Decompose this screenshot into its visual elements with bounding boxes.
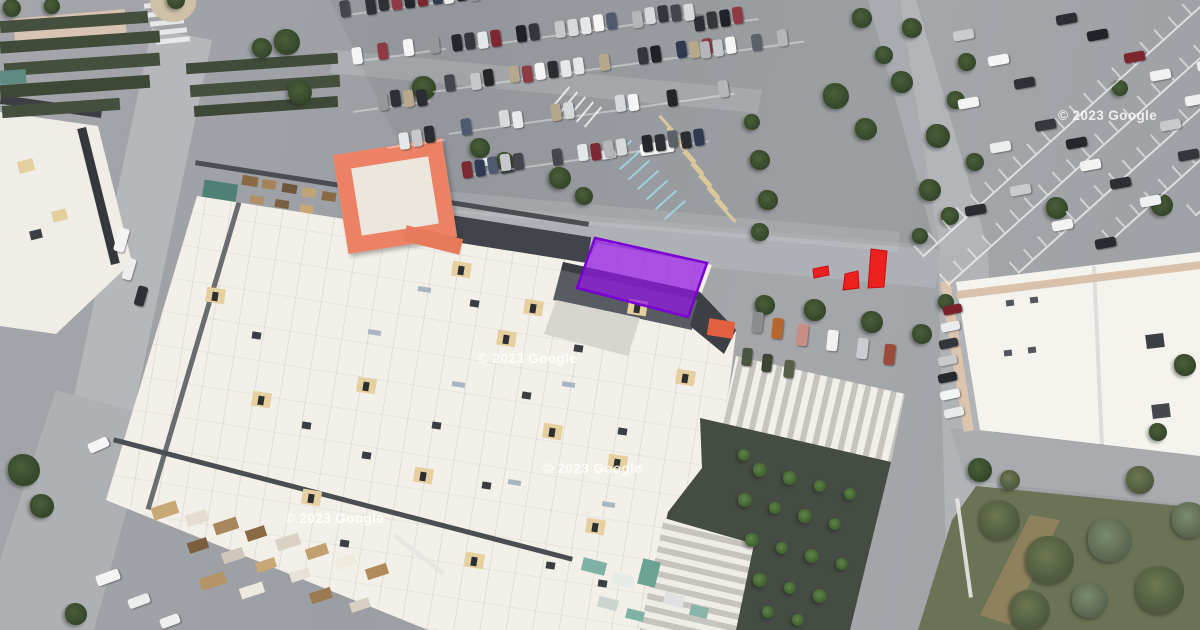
satellite-map-view[interactable]: © 2023 Google © 2023 Google © 2023 Googl… (0, 0, 1200, 630)
annotation-purple-zone[interactable] (577, 238, 707, 317)
annotation-red-zone-3[interactable] (868, 249, 887, 288)
annotation-red-zone-2[interactable] (843, 271, 859, 290)
annotation-layer (0, 0, 1200, 630)
annotation-red-zone-1[interactable] (813, 266, 829, 278)
